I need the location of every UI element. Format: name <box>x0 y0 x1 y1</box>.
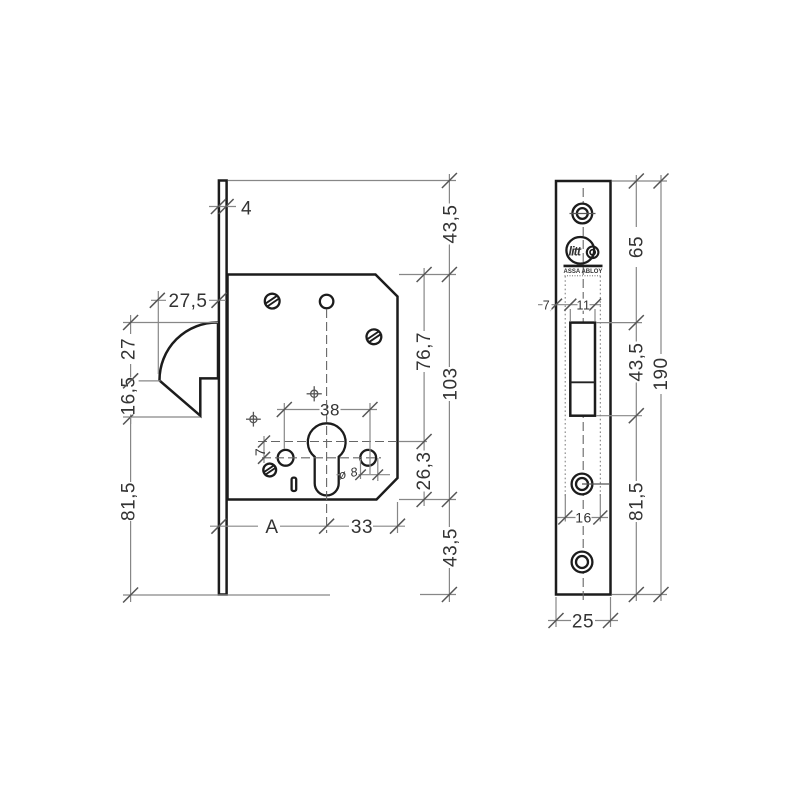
svg-text:76,7: 76,7 <box>414 332 435 371</box>
svg-text:7: 7 <box>252 448 268 456</box>
svg-text:103: 103 <box>440 367 461 400</box>
svg-text:27: 27 <box>119 338 140 360</box>
svg-text:27,5: 27,5 <box>169 291 208 312</box>
svg-text:33: 33 <box>351 517 373 538</box>
svg-text:25: 25 <box>572 611 594 632</box>
svg-text:ASSA ABLOY: ASSA ABLOY <box>564 269 603 275</box>
svg-text:litt: litt <box>569 245 582 259</box>
svg-text:43,5: 43,5 <box>440 205 461 244</box>
svg-text:26,3: 26,3 <box>414 452 435 491</box>
svg-text:43,5: 43,5 <box>440 528 461 567</box>
svg-text:A: A <box>265 517 278 538</box>
svg-text:81,5: 81,5 <box>119 482 140 521</box>
svg-text:4: 4 <box>241 198 252 219</box>
svg-text:190: 190 <box>651 357 672 390</box>
svg-text:38: 38 <box>320 401 340 420</box>
svg-text:65: 65 <box>626 236 647 258</box>
svg-text:11: 11 <box>577 298 591 312</box>
svg-text:43,5: 43,5 <box>626 343 647 382</box>
svg-text:16: 16 <box>575 509 592 525</box>
svg-text:7: 7 <box>543 298 550 312</box>
svg-text:81,5: 81,5 <box>626 482 647 521</box>
